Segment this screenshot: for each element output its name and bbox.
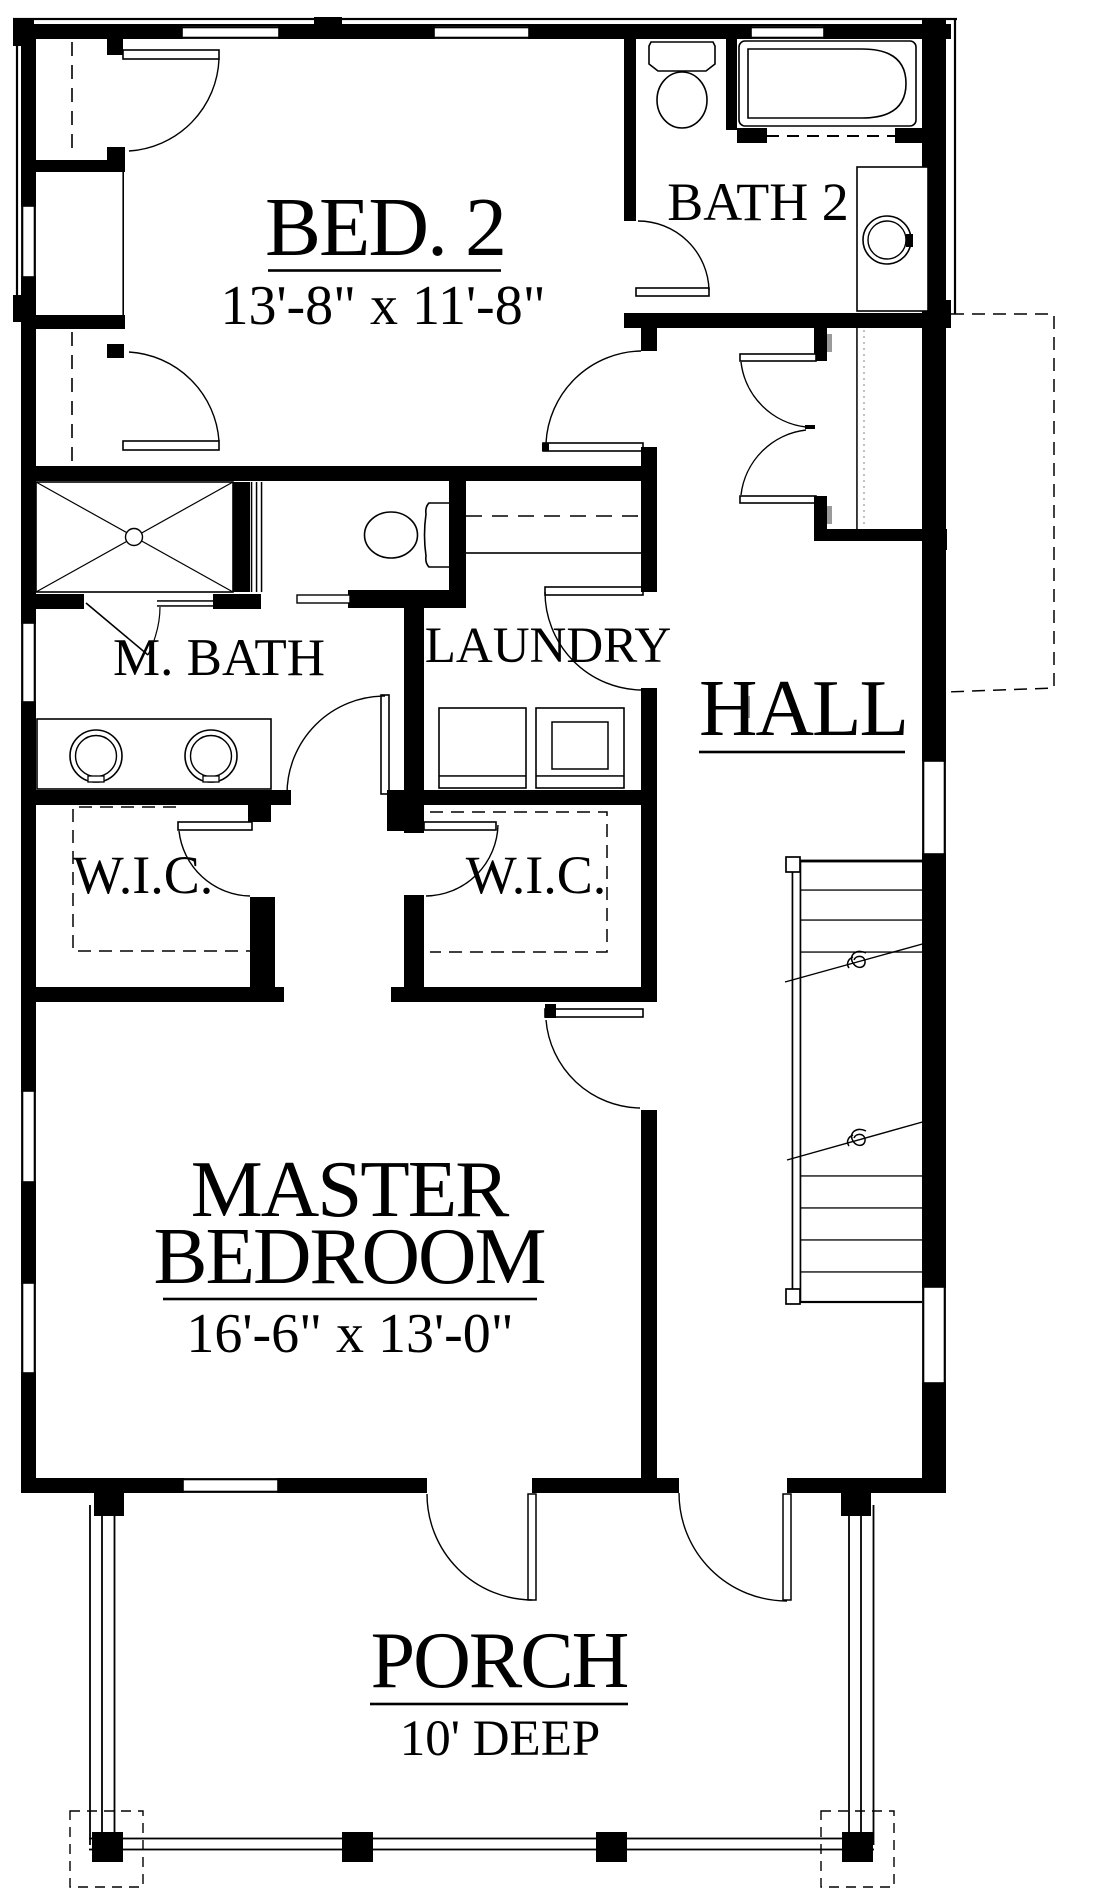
svg-text:10' DEEP: 10' DEEP <box>400 1711 600 1767</box>
svg-text:BATH 2: BATH 2 <box>667 172 849 232</box>
svg-text:PORCH: PORCH <box>371 1617 628 1705</box>
svg-text:16'-6" x 13'-0": 16'-6" x 13'-0" <box>186 1303 513 1365</box>
svg-text:W.I.C.: W.I.C. <box>466 845 607 905</box>
svg-text:13'-8" x 11'-8": 13'-8" x 11'-8" <box>220 275 545 337</box>
svg-text:LAUNDRY: LAUNDRY <box>425 618 672 674</box>
svg-text:W.I.C.: W.I.C. <box>73 845 214 905</box>
svg-text:HALL: HALL <box>699 663 907 753</box>
svg-text:BEDROOM: BEDROOM <box>153 1211 544 1301</box>
svg-text:BED. 2: BED. 2 <box>265 181 505 274</box>
svg-text:M. BATH: M. BATH <box>113 629 325 687</box>
